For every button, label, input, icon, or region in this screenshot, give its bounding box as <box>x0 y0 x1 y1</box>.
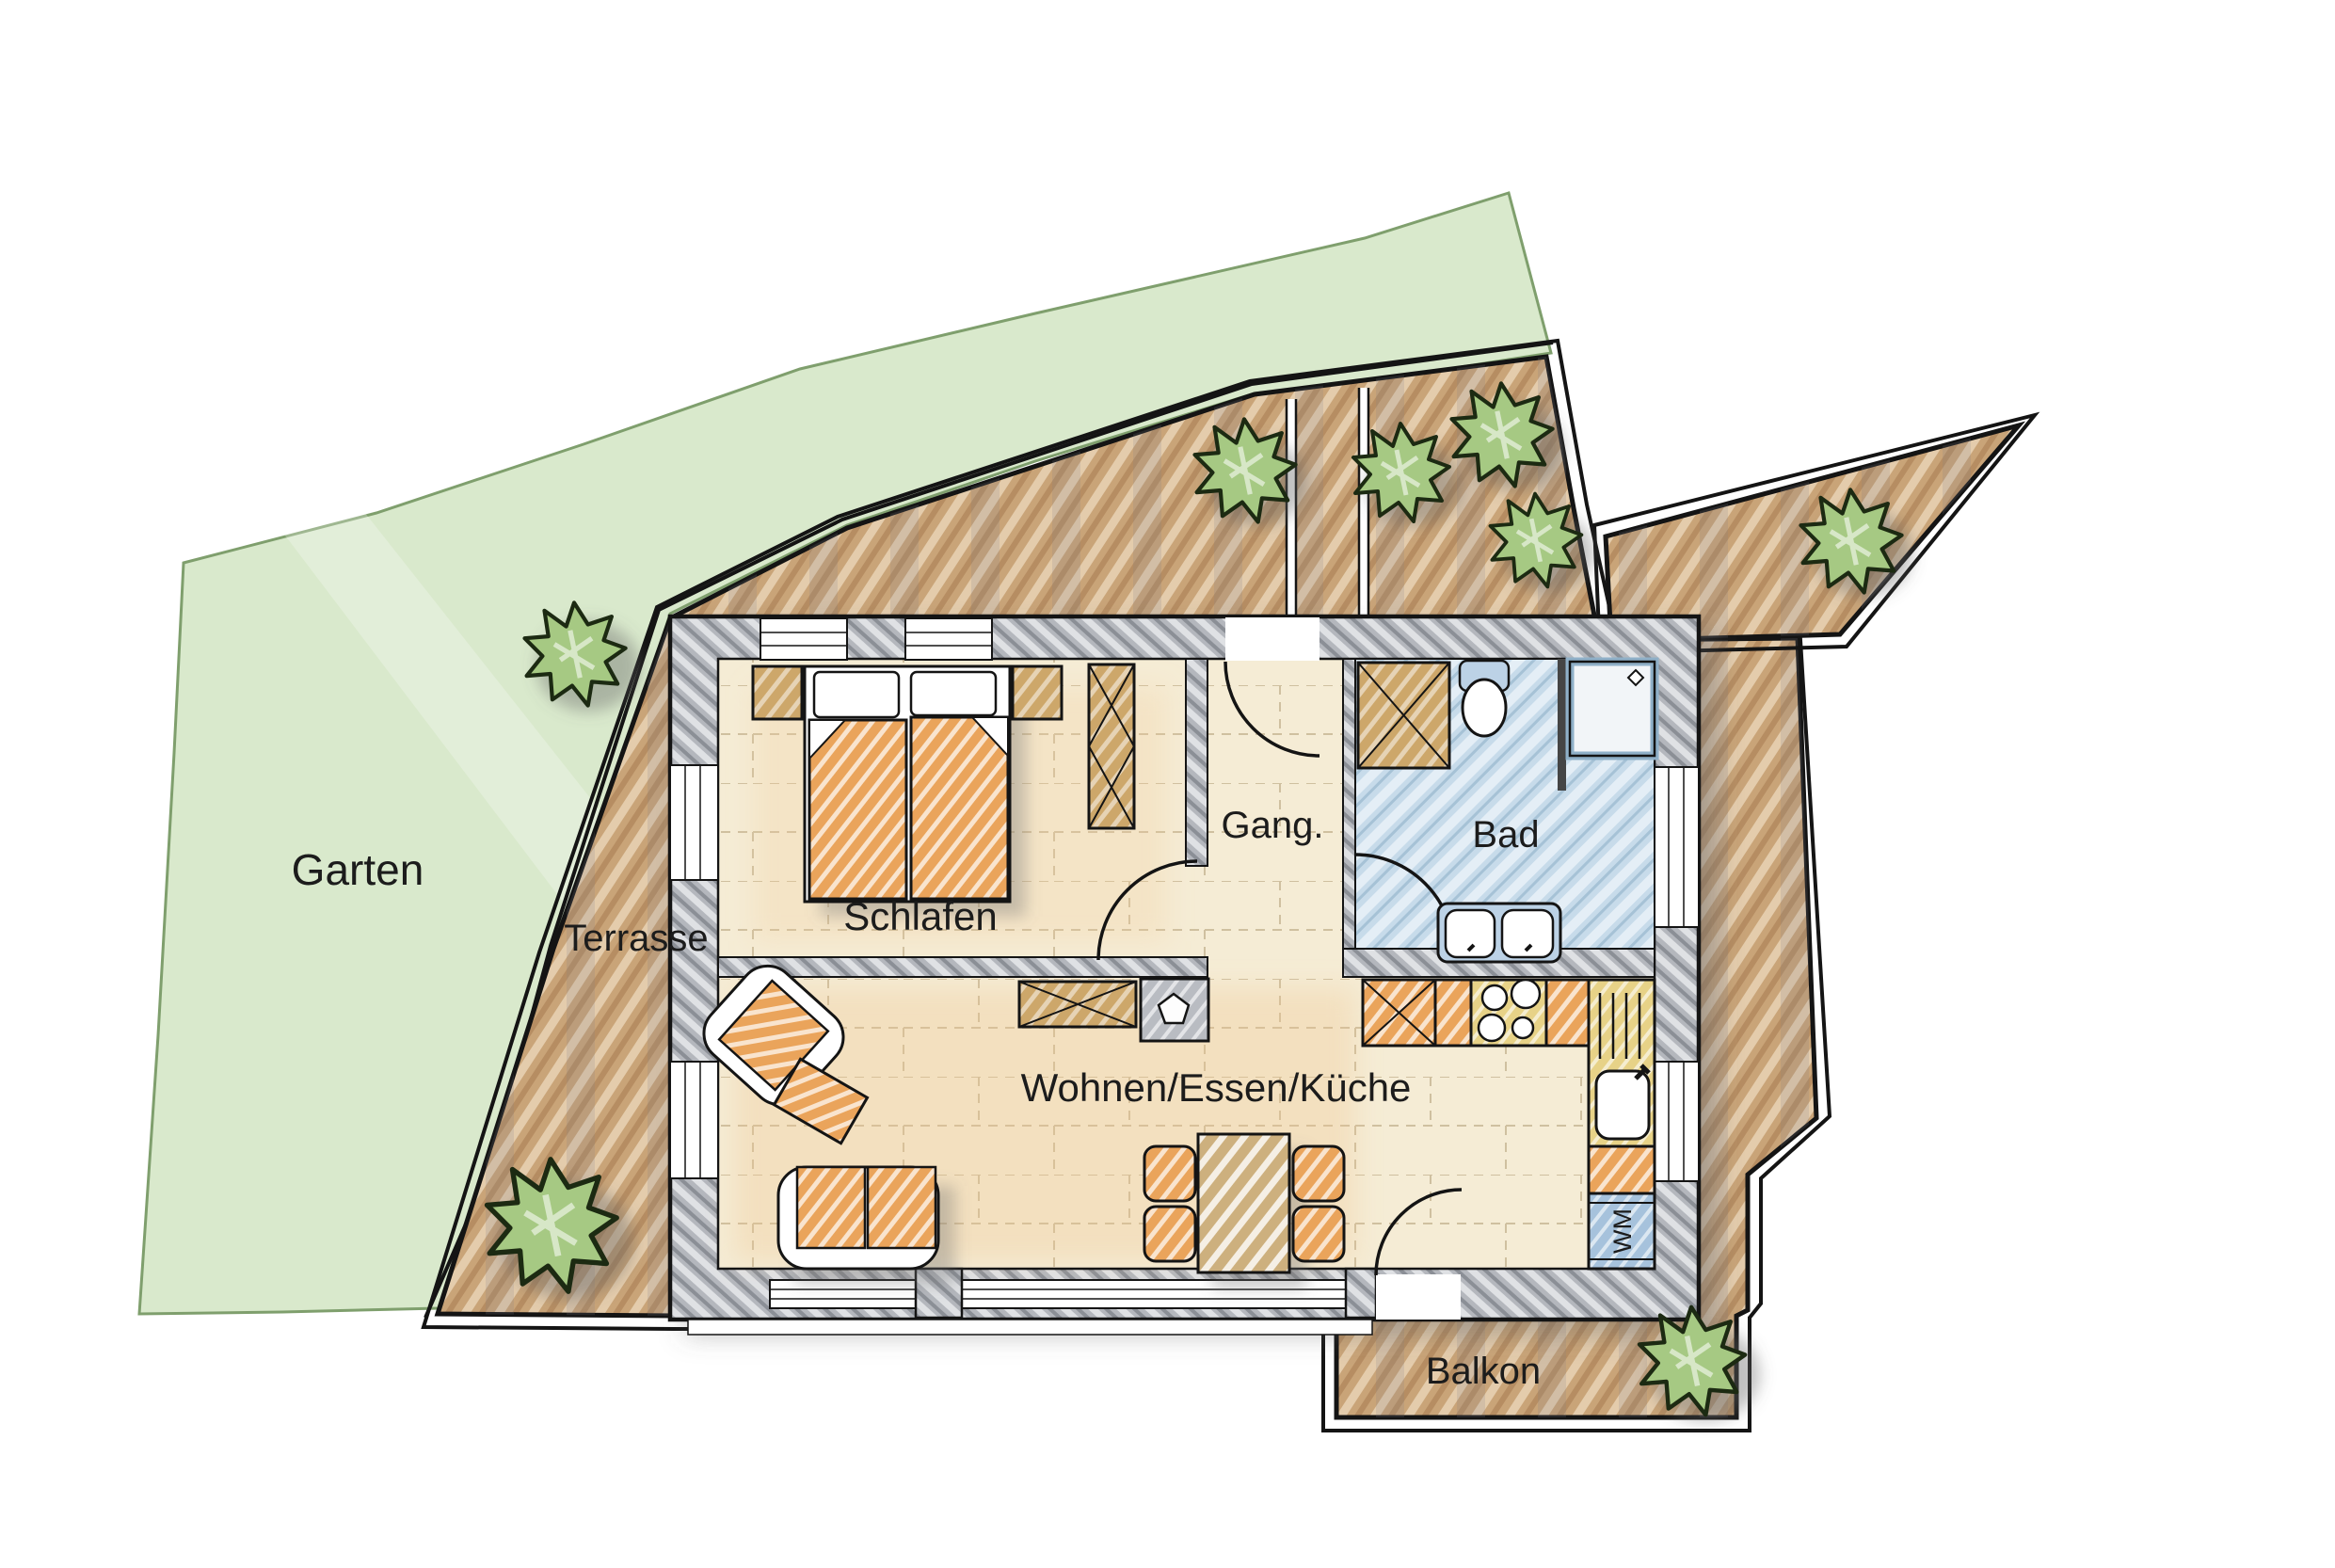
dining-table-icon <box>1198 1134 1289 1272</box>
kitchen-sink-counter <box>1589 980 1655 1146</box>
bedroom-label: Schlafen <box>843 894 997 938</box>
shower-icon <box>1570 662 1655 756</box>
bath-cabinet-icon <box>1358 663 1449 768</box>
double-bed-icon <box>805 666 1010 902</box>
sideboard-icon <box>1019 982 1136 1027</box>
kitchen-counter <box>1546 980 1590 1046</box>
nightstand-icon <box>1013 666 1062 719</box>
washing-machine-label: WM <box>1608 1208 1637 1254</box>
chair-icon <box>1293 1207 1344 1261</box>
toilet-icon <box>1460 661 1509 736</box>
window-top-2 <box>905 618 992 660</box>
duvet <box>911 717 1008 899</box>
kitchen-counter <box>1589 1146 1655 1193</box>
nightstand-icon <box>753 666 802 719</box>
bathroom-label: Bad <box>1472 814 1539 856</box>
pillow <box>911 672 996 715</box>
kitchen-sink-icon <box>1596 1071 1649 1139</box>
terrace-label: Terrasse <box>564 918 708 959</box>
kitchen-tall-cabinet-icon <box>1363 980 1435 1046</box>
window-bath-right <box>1655 767 1699 927</box>
living-label: Wohnen/Essen/Küche <box>1021 1065 1412 1110</box>
wall-pier-bottom-2 <box>1346 1269 1376 1318</box>
window-top-1 <box>760 618 847 660</box>
chair-icon <box>1144 1207 1195 1261</box>
wall-shower-partition <box>1558 659 1566 791</box>
stove-icon <box>1471 980 1546 1046</box>
balcony-door-opening <box>1376 1274 1461 1320</box>
entrance-door-opening <box>1225 617 1319 661</box>
duvet <box>809 720 906 899</box>
floor-plan: WM <box>0 0 2335 1568</box>
sofa-icon <box>778 1167 938 1269</box>
wall-bedroom-right <box>1186 659 1207 866</box>
exterior-sill-band <box>688 1320 1372 1335</box>
wardrobe-icon <box>1089 664 1134 828</box>
garden-label: Garten <box>292 845 424 894</box>
wall-bedroom-bottom <box>718 957 1207 977</box>
kitchen-counter <box>1435 980 1471 1046</box>
balcony-label: Balkon <box>1426 1351 1541 1392</box>
chair-icon <box>1144 1146 1195 1201</box>
burner <box>1482 985 1507 1010</box>
burner <box>1512 1017 1533 1038</box>
pillow <box>814 672 899 717</box>
hallway-label: Gang. <box>1222 805 1324 846</box>
burner <box>1511 980 1540 1008</box>
wall-hall-bath <box>1343 659 1355 969</box>
burner <box>1479 1015 1505 1041</box>
washing-machine-icon: WM <box>1589 1193 1655 1269</box>
window-left-1 <box>670 765 718 880</box>
double-sink-icon <box>1438 904 1560 962</box>
tv-stand-icon <box>1141 979 1208 1041</box>
window-left-2 <box>670 1062 718 1178</box>
chair-icon <box>1293 1146 1344 1201</box>
window-kitchen-right <box>1655 1062 1699 1181</box>
